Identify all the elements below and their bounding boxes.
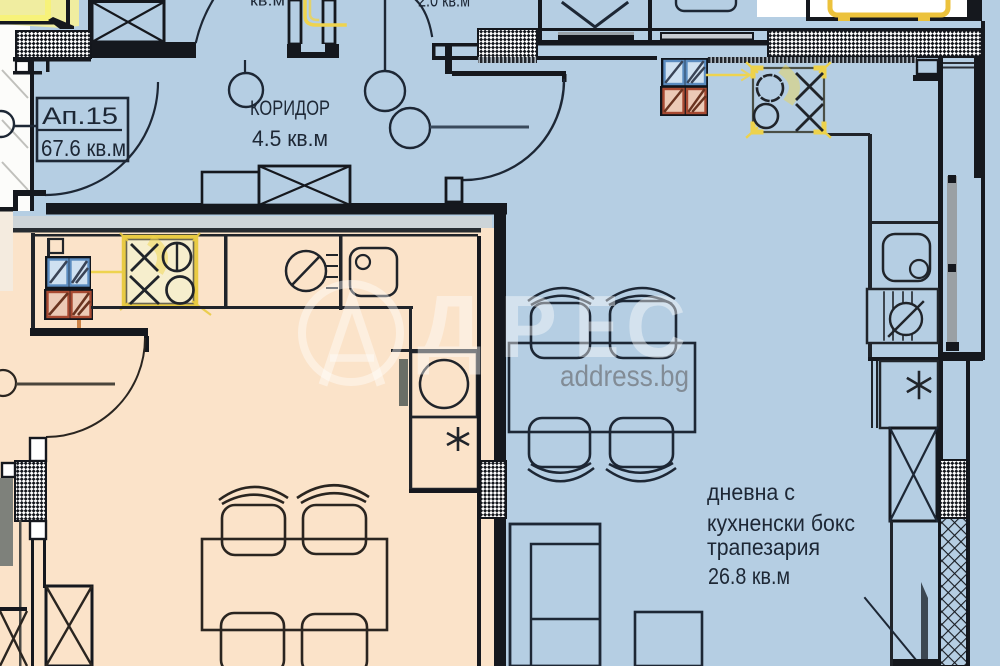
- svg-text:26.8 кв.м: 26.8 кв.м: [708, 563, 790, 589]
- svg-text:2.0 кв.м: 2.0 кв.м: [418, 0, 470, 11]
- svg-text:Р: Р: [500, 277, 557, 376]
- svg-text:Д: Д: [417, 277, 482, 376]
- svg-text:кв.м: кв.м: [250, 0, 285, 10]
- svg-text:4.5 кв.м: 4.5 кв.м: [252, 126, 328, 151]
- svg-text:трапезария: трапезария: [707, 534, 820, 560]
- svg-text:кухненски бокс: кухненски бокс: [707, 510, 855, 536]
- svg-text:дневна с: дневна с: [707, 479, 795, 505]
- svg-text:КОРИДОР: КОРИДОР: [250, 97, 330, 120]
- svg-text:67.6 кв.м: 67.6 кв.м: [41, 135, 126, 161]
- svg-text:address.bg: address.bg: [560, 360, 689, 393]
- svg-text:Ап.15: Ап.15: [42, 103, 118, 130]
